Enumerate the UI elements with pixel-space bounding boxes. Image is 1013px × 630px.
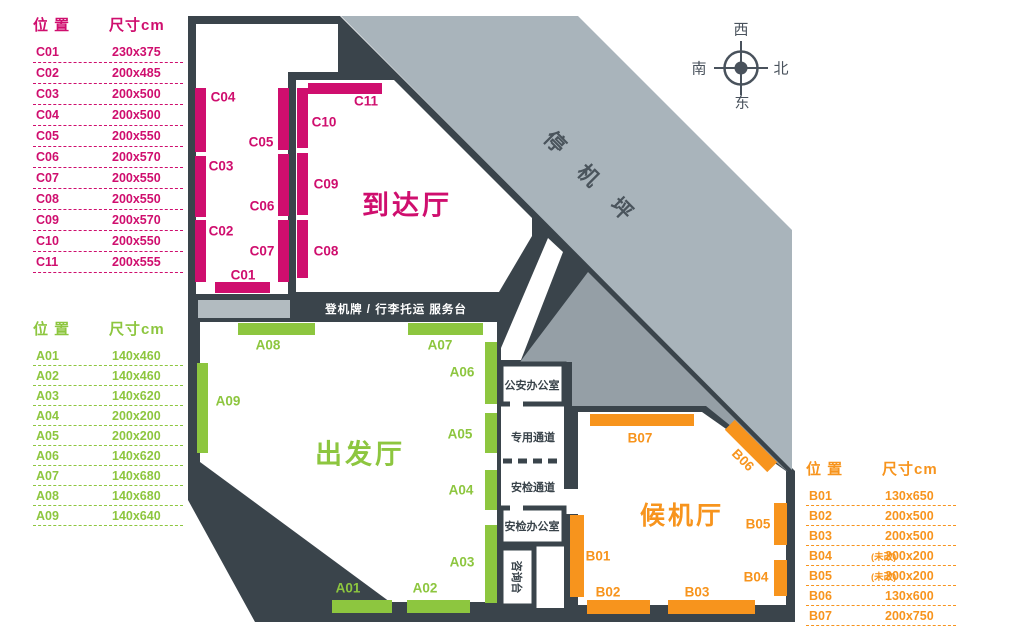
legend-b-col-position: 位 置	[806, 458, 882, 479]
legend-row: C01 230x375	[33, 42, 183, 63]
legend-row-position: A05	[33, 429, 98, 443]
bar-b03	[668, 600, 755, 614]
legend-row-position: C01	[33, 45, 98, 59]
bar-a07	[408, 323, 483, 335]
legend-row-position: C09	[33, 213, 98, 227]
legend-row-position: C06	[33, 150, 98, 164]
compass-rose	[714, 41, 768, 95]
legend-a-header: 位 置 尺寸cm	[33, 318, 183, 339]
checkin-counter-label: 登机牌 / 行李托运 服务台	[325, 301, 467, 317]
marker-b07: B07	[628, 431, 653, 446]
marker-c08: C08	[314, 244, 339, 259]
legend-row-size: 200x485	[112, 66, 183, 80]
legend-b-col-size: 尺寸cm	[882, 458, 938, 479]
legend-row: C05 200x550	[33, 126, 183, 147]
marker-a08: A08	[256, 338, 281, 353]
legend-row-size: 200x200	[885, 549, 956, 563]
compass-east-label: 东	[734, 92, 749, 113]
legend-row-size: 140x680	[112, 469, 183, 483]
compass-west-label: 西	[733, 19, 748, 40]
compass-dot	[735, 62, 748, 75]
legend-row-size: 130x650	[885, 489, 956, 503]
bar-a05	[485, 413, 497, 453]
legend-row-position: B05	[806, 569, 871, 583]
legend-b-header: 位 置 尺寸cm	[806, 458, 956, 479]
marker-c07: C07	[250, 244, 275, 259]
legend-row-position: A06	[33, 449, 98, 463]
legend-row-position: B04	[806, 549, 871, 563]
marker-b03: B03	[685, 585, 710, 600]
legend-row-size: 200x500	[112, 108, 183, 122]
marker-a05: A05	[448, 427, 473, 442]
bar-b01	[570, 515, 584, 597]
legend-row: A02 140x460	[33, 366, 183, 386]
security-office-label: 安检办公室	[505, 518, 560, 534]
legend-row-position: B01	[806, 489, 871, 503]
legend-row: B06 130x600	[806, 586, 956, 606]
legend-row-size: 200x200	[885, 569, 956, 583]
legend-a-col-size: 尺寸cm	[109, 318, 165, 339]
legend-row-position: C04	[33, 108, 98, 122]
legend-a-col-position: 位 置	[33, 318, 109, 339]
marker-b02: B02	[596, 585, 621, 600]
legend-row: B04 (未改) 200x200	[806, 546, 956, 566]
marker-b01: B01	[586, 549, 611, 564]
compass-north-label: 北	[773, 58, 788, 79]
marker-a03: A03	[450, 555, 475, 570]
legend-table-a: 位 置 尺寸cm A01 140x460 A02 140x460 A03 140…	[33, 318, 183, 526]
legend-row: C10 200x550	[33, 231, 183, 252]
legend-row-size: 130x600	[885, 589, 956, 603]
marker-a06: A06	[450, 365, 475, 380]
legend-row-size: 200x550	[112, 234, 183, 248]
bar-c05	[278, 88, 289, 150]
legend-row-note: (未改)	[871, 569, 885, 583]
legend-row: B01 130x650	[806, 486, 956, 506]
legend-row-position: C05	[33, 129, 98, 143]
legend-table-c: 位 置 尺寸cm C01 230x375 C02 200x485 C03 200…	[33, 14, 183, 273]
legend-row: B05 (未改) 200x200	[806, 566, 956, 586]
legend-row-size: 200x570	[112, 213, 183, 227]
bar-b02	[587, 600, 650, 614]
bar-c07	[278, 220, 289, 282]
marker-c09: C09	[314, 177, 339, 192]
marker-c11: C11	[354, 94, 378, 109]
legend-row: C02 200x485	[33, 63, 183, 84]
legend-row: A01 140x460	[33, 346, 183, 366]
legend-row-position: B06	[806, 589, 871, 603]
bar-c08	[297, 220, 308, 278]
legend-row: A07 140x680	[33, 466, 183, 486]
legend-row: B02 200x500	[806, 506, 956, 526]
marker-a02: A02	[413, 581, 438, 596]
legend-row-position: A03	[33, 389, 98, 403]
marker-c10: C10	[312, 115, 337, 130]
legend-row-size: 200x750	[885, 609, 956, 623]
bar-a01	[332, 600, 392, 613]
legend-table-b: 位 置 尺寸cm B01 130x650 B02 200x500 B03 200…	[806, 458, 956, 626]
marker-c04: C04	[211, 90, 236, 105]
marker-a04: A04	[449, 483, 474, 498]
legend-row-position: C07	[33, 171, 98, 185]
bar-b05	[774, 503, 787, 545]
bar-c11	[308, 83, 382, 94]
legend-row: C03 200x500	[33, 84, 183, 105]
legend-row-size: 200x555	[112, 255, 183, 269]
legend-c-col-position: 位 置	[33, 14, 109, 35]
legend-row-size: 140x460	[112, 349, 183, 363]
departure-hall-title: 出发厅	[315, 433, 405, 472]
legend-c-col-size: 尺寸cm	[109, 14, 165, 35]
waiting-hall-title: 候机厅	[640, 496, 724, 532]
info-desk-label: 咨询台	[509, 561, 525, 594]
legend-row-size: 200x500	[885, 529, 956, 543]
bar-b07	[590, 414, 694, 426]
bar-c09	[297, 153, 308, 215]
marker-a01: A01	[336, 581, 361, 596]
legend-row-position: B03	[806, 529, 871, 543]
security-office-door-gap	[510, 503, 523, 513]
legend-row-position: A04	[33, 409, 98, 423]
legend-row-position: C10	[33, 234, 98, 248]
marker-a07: A07	[428, 338, 453, 353]
bar-a06	[485, 342, 497, 404]
legend-row-size: 140x620	[112, 449, 183, 463]
legend-row-size: 230x375	[112, 45, 183, 59]
bar-a09	[197, 363, 208, 453]
legend-row: B03 200x500	[806, 526, 956, 546]
legend-row-size: 140x620	[112, 389, 183, 403]
marker-c03: C03	[209, 159, 234, 174]
bar-b04	[774, 560, 787, 596]
bar-a04	[485, 470, 497, 510]
legend-row-size: 140x680	[112, 489, 183, 503]
legend-row-size: 200x500	[885, 509, 956, 523]
legend-row-size: 140x460	[112, 369, 183, 383]
marker-b04: B04	[744, 570, 769, 585]
legend-row-position: C11	[33, 255, 98, 269]
bar-c03	[195, 156, 206, 217]
legend-row: C07 200x550	[33, 168, 183, 189]
police-office-door-gap	[510, 399, 523, 409]
legend-row: A03 140x620	[33, 386, 183, 406]
legend-row-position: C08	[33, 192, 98, 206]
marker-c06: C06	[250, 199, 275, 214]
bar-c01	[215, 282, 270, 293]
legend-row-position: A07	[33, 469, 98, 483]
legend-row: A04 200x200	[33, 406, 183, 426]
legend-row-position: B07	[806, 609, 871, 623]
bar-c06	[278, 154, 289, 216]
legend-row-position: A02	[33, 369, 98, 383]
legend-row: C09 200x570	[33, 210, 183, 231]
bar-c04	[195, 88, 206, 152]
legend-row-size: 200x500	[112, 87, 183, 101]
bar-c02	[195, 220, 206, 282]
legend-row: A05 200x200	[33, 426, 183, 446]
arrival-hall-title: 到达厅	[362, 184, 452, 223]
police-office-label: 公安办公室	[505, 377, 560, 393]
marker-a09: A09	[216, 394, 241, 409]
bar-a03	[485, 525, 497, 603]
bar-a02	[407, 600, 470, 613]
bar-a08	[238, 323, 315, 335]
legend-row-position: C03	[33, 87, 98, 101]
legend-row: A06 140x620	[33, 446, 183, 466]
legend-row: C04 200x500	[33, 105, 183, 126]
compass-south-label: 南	[691, 58, 706, 79]
marker-b05: B05	[746, 517, 771, 532]
legend-row-position: C02	[33, 66, 98, 80]
legend-row: A08 140x680	[33, 486, 183, 506]
legend-row: A09 140x640	[33, 506, 183, 526]
marker-c01: C01	[231, 268, 256, 283]
legend-row-size: 200x550	[112, 171, 183, 185]
marker-c05: C05	[249, 135, 274, 150]
legend-row-position: A09	[33, 509, 98, 523]
legend-row-position: A08	[33, 489, 98, 503]
legend-row-position: A01	[33, 349, 98, 363]
legend-row-note: (未改)	[871, 549, 885, 563]
legend-row-size: 200x570	[112, 150, 183, 164]
legend-row: B07 200x750	[806, 606, 956, 626]
floor-plan-page: 位 置 尺寸cm C01 230x375 C02 200x485 C03 200…	[0, 0, 1013, 630]
security-passage-label: 安检通道	[511, 479, 555, 495]
legend-row: C11 200x555	[33, 252, 183, 273]
legend-row-position: B02	[806, 509, 871, 523]
marker-c02: C02	[209, 224, 234, 239]
checkin-counter-block	[198, 300, 290, 318]
legend-row-size: 200x200	[112, 429, 183, 443]
special-passage-label: 专用通道	[511, 429, 555, 445]
legend-row-size: 200x200	[112, 409, 183, 423]
bar-c10	[297, 88, 308, 148]
legend-row-size: 200x550	[112, 129, 183, 143]
legend-row: C06 200x570	[33, 147, 183, 168]
legend-row-size: 140x640	[112, 509, 183, 523]
legend-row-size: 200x550	[112, 192, 183, 206]
legend-row: C08 200x550	[33, 189, 183, 210]
legend-c-header: 位 置 尺寸cm	[33, 14, 183, 35]
